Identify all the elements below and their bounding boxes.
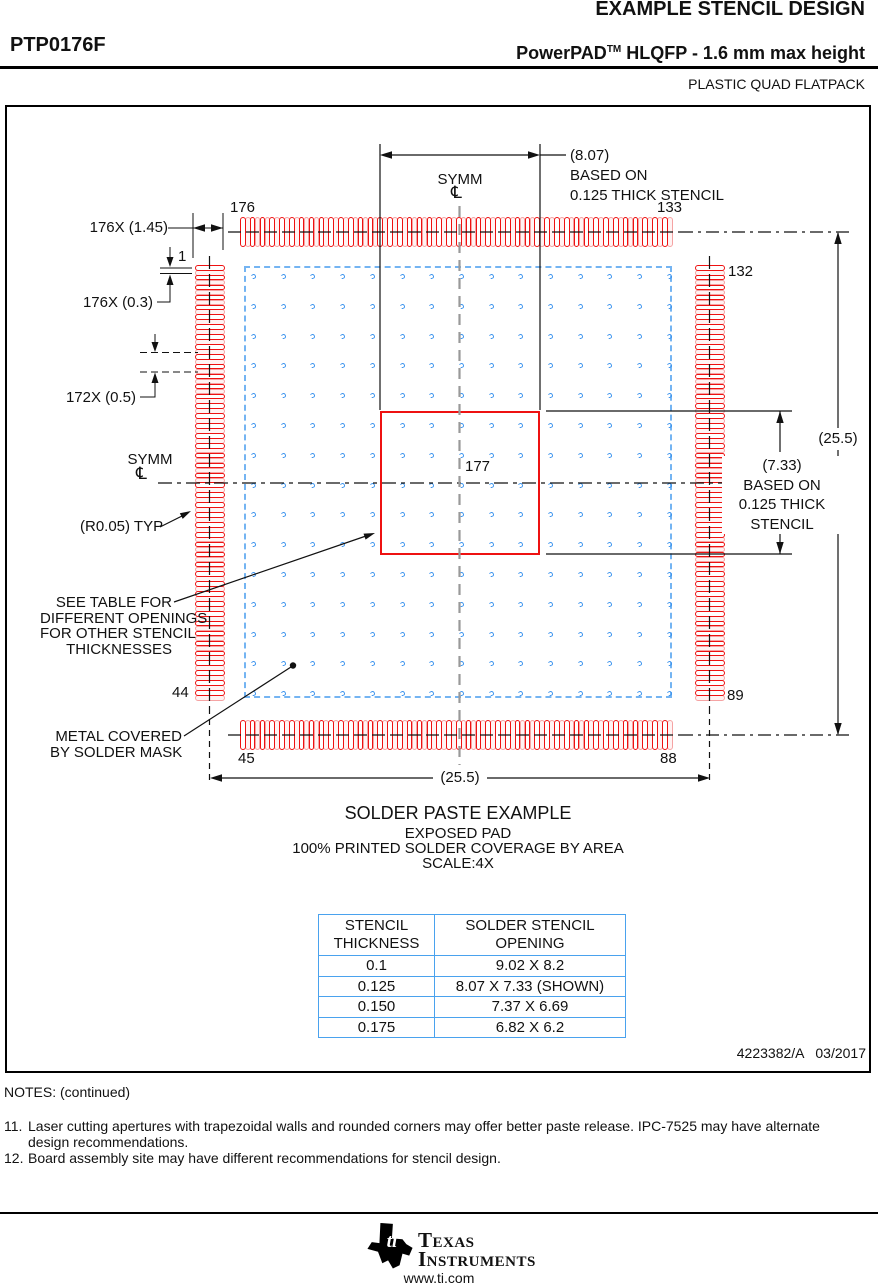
stencil-pad (476, 720, 482, 750)
stencil-pad (695, 354, 725, 360)
stencil-pad (544, 217, 550, 247)
stencil-pad (613, 720, 619, 750)
stencil-pad (195, 542, 225, 548)
caption-title: SOLDER PASTE EXAMPLE (158, 806, 758, 822)
pin-177-label: 177 (465, 459, 490, 475)
metal-covered-note: METAL COVEREDBY SOLDER MASK (50, 729, 182, 760)
centerline-symbol-top: ℄ (451, 186, 462, 202)
stencil-pad (240, 217, 246, 247)
stencil-pad (695, 275, 725, 281)
stencil-pad (574, 720, 580, 750)
stencil-pad (195, 423, 225, 429)
stencil-pad (407, 720, 413, 750)
table-row: 0.1258.07 X 7.33 (SHOWN) (319, 976, 626, 997)
stencil-pad (695, 364, 725, 370)
stencil-pad (515, 217, 521, 247)
stencil-pad (495, 217, 501, 247)
stencil-table-body: 0.19.02 X 8.20.1258.07 X 7.33 (SHOWN)0.1… (319, 956, 626, 1038)
stencil-pad (446, 217, 452, 247)
stencil-pad (505, 720, 511, 750)
document-number: 4223382/A 03/2017 (578, 1046, 866, 1062)
family-name: PowerPAD (516, 43, 607, 63)
stencil-pad (695, 695, 725, 701)
stencil-pad (642, 217, 648, 247)
stencil-pad (338, 217, 344, 247)
pin-45-label: 45 (238, 751, 255, 767)
stencil-pad (695, 601, 725, 607)
stencil-pad (667, 217, 673, 247)
stencil-pad (695, 374, 725, 380)
part-number: PTP0176F (10, 38, 106, 54)
stencil-pad (195, 403, 225, 409)
footer-rule (0, 1212, 878, 1214)
pin-89-label: 89 (727, 688, 744, 704)
stencil-pad (195, 453, 225, 459)
stencil-pad (195, 651, 225, 657)
stencil-pad (319, 217, 325, 247)
stencil-pad (195, 562, 225, 568)
pin-44-label: 44 (172, 685, 189, 701)
package-type: PLASTIC QUAD FLATPACK (688, 77, 865, 93)
symm-left-label: SYMM (125, 452, 175, 468)
stencil-pad (195, 695, 225, 701)
stencil-pad (495, 720, 501, 750)
stencil-pad (695, 423, 725, 429)
notes-heading: NOTES: (continued) (4, 1084, 130, 1100)
stencil-pad (662, 720, 668, 750)
stencil-pad (695, 651, 725, 657)
stencil-pad (348, 217, 354, 247)
stencil-pad (269, 217, 275, 247)
stencil-pad (623, 217, 629, 247)
stencil-pad (417, 720, 423, 750)
stencil-pad (417, 217, 423, 247)
stencil-pad (195, 295, 225, 301)
stencil-pad (195, 591, 225, 597)
col-header-opening: SOLDER STENCILOPENING (435, 915, 626, 956)
pin-176-label: 176 (230, 200, 255, 216)
stencil-pad (348, 720, 354, 750)
note-12-number: 12. (4, 1150, 23, 1166)
stencil-pad (554, 217, 560, 247)
stencil-pad (623, 720, 629, 750)
stencil-pad (195, 512, 225, 518)
stencil-pad (407, 217, 413, 247)
stencil-pad (195, 641, 225, 647)
stencil-pad (195, 334, 225, 340)
stencil-pad (695, 334, 725, 340)
centerline-symbol-left: ℄ (136, 467, 147, 483)
stencil-pad (603, 217, 609, 247)
stencil-pad (534, 217, 540, 247)
stencil-pad (695, 482, 725, 488)
stencil-pad (328, 217, 334, 247)
stencil-pad (269, 720, 275, 750)
ti-texas-logo: ti (366, 1222, 414, 1270)
stencil-pad (195, 601, 225, 607)
stencil-pad (695, 324, 725, 330)
stencil-pad (593, 720, 599, 750)
stencil-pad (515, 720, 521, 750)
stencil-pad (397, 217, 403, 247)
stencil-pad (695, 285, 725, 291)
stencil-pad (695, 571, 725, 577)
note-11-number: 11. (4, 1118, 22, 1134)
stencil-pad (195, 571, 225, 577)
stencil-pad (695, 443, 725, 449)
stencil-pad (695, 265, 725, 271)
dim-25-bottom-label: (25.5) (433, 770, 487, 786)
stencil-pad (240, 720, 246, 750)
radius-typ-label: (R0.05) TYP (80, 519, 163, 535)
dim-25-right-label: (25.5) (812, 431, 864, 447)
stencil-pad (195, 660, 225, 666)
dim-pad-width-label: 176X (0.3) (55, 295, 153, 311)
stencil-pad (695, 631, 725, 637)
stencil-pad (195, 384, 225, 390)
stencil-pad (377, 720, 383, 750)
stencil-pad (695, 641, 725, 647)
caption-line-4: SCALE:4X (158, 856, 758, 872)
stencil-pad (466, 217, 472, 247)
table-row: 0.1507.37 X 6.69 (319, 997, 626, 1018)
stencil-pad (554, 720, 560, 750)
dim-right-annotation: (7.33)BASED ON0.125 THICKSTENCIL (722, 456, 842, 534)
stencil-pad (319, 720, 325, 750)
stencil-pad (195, 581, 225, 587)
stencil-pad (195, 532, 225, 538)
stencil-pad (695, 621, 725, 627)
stencil-pad (436, 217, 442, 247)
stencil-pad (613, 217, 619, 247)
stencil-pad (695, 403, 725, 409)
stencil-pad (195, 324, 225, 330)
stencil-pad (289, 217, 295, 247)
stencil-pad (633, 217, 639, 247)
stencil-pad (584, 217, 590, 247)
stencil-pad (695, 492, 725, 498)
stencil-pad (195, 690, 225, 696)
ti-url: www.ti.com (0, 1271, 878, 1287)
stencil-pad (446, 720, 452, 750)
stencil-pad (195, 394, 225, 400)
stencil-pad (358, 720, 364, 750)
stencil-pad (195, 413, 225, 419)
stencil-pad (695, 394, 725, 400)
stencil-pad (195, 631, 225, 637)
stencil-pad (368, 720, 374, 750)
stencil-pad (466, 720, 472, 750)
stencil-pad (695, 591, 725, 597)
stencil-pad (564, 720, 570, 750)
stencil-pad (525, 217, 531, 247)
stencil-pad (195, 443, 225, 449)
stencil-pad (195, 680, 225, 686)
stencil-pad (593, 217, 599, 247)
stencil-pad (279, 720, 285, 750)
dim-top-annotation: (8.07)BASED ON0.125 THICK STENCIL (570, 146, 724, 206)
stencil-pad (250, 720, 256, 750)
stencil-pad (427, 217, 433, 247)
stencil-pad (195, 344, 225, 350)
stencil-pad (387, 217, 393, 247)
dim-pitch-label: 172X (0.5) (38, 390, 136, 406)
pin-1-label: 1 (178, 249, 186, 265)
stencil-pad (260, 217, 266, 247)
stencil-pad (195, 552, 225, 558)
table-row: 0.19.02 X 8.2 (319, 956, 626, 977)
stencil-pad (652, 217, 658, 247)
stencil-pad (695, 552, 725, 558)
note-11-line-1: Laser cutting apertures with trapezoidal… (28, 1118, 820, 1134)
stencil-pad (485, 217, 491, 247)
stencil-pad (289, 720, 295, 750)
stencil-pad (195, 463, 225, 469)
stencil-pad (603, 720, 609, 750)
stencil-pad (695, 413, 725, 419)
stencil-pad (195, 285, 225, 291)
dim-pad-length-label: 176X (1.45) (60, 220, 168, 236)
stencil-pad (309, 217, 315, 247)
stencil-pad (695, 344, 725, 350)
stencil-pad (195, 314, 225, 320)
stencil-pad (695, 611, 725, 617)
stencil-pad (695, 295, 725, 301)
stencil-pad (195, 522, 225, 528)
stencil-pad (695, 502, 725, 508)
trademark-sup: TM (607, 44, 621, 55)
stencil-pad (695, 305, 725, 311)
subtitle-rest: HLQFP - 1.6 mm max height (621, 43, 865, 63)
stencil-pad (299, 720, 305, 750)
stencil-pad (564, 217, 570, 247)
stencil-pad (195, 364, 225, 370)
stencil-pad (195, 670, 225, 676)
stencil-pad (525, 720, 531, 750)
stencil-pad (485, 720, 491, 750)
stencil-pad (695, 453, 725, 459)
stencil-pad (456, 217, 462, 247)
page-title: EXAMPLE STENCIL DESIGN (595, 2, 865, 18)
stencil-pad (260, 720, 266, 750)
stencil-pad (695, 532, 725, 538)
stencil-pad (195, 265, 225, 271)
stencil-pad (195, 275, 225, 281)
stencil-pad (695, 660, 725, 666)
stencil-pad (695, 314, 725, 320)
stencil-pad (195, 502, 225, 508)
stencil-pad (195, 433, 225, 439)
stencil-pad (695, 670, 725, 676)
stencil-pad (456, 720, 462, 750)
stencil-pad (195, 482, 225, 488)
stencil-pad (695, 463, 725, 469)
stencil-pad (436, 720, 442, 750)
pin-88-label: 88 (660, 751, 677, 767)
note-12-line-1: Board assembly site may have different r… (28, 1150, 501, 1166)
exposed-pad-opening (380, 411, 540, 555)
stencil-pad (427, 720, 433, 750)
stencil-pad (368, 217, 374, 247)
stencil-pad (695, 433, 725, 439)
table-row: 0.1756.82 X 6.2 (319, 1017, 626, 1038)
stencil-pad (476, 217, 482, 247)
col-header-thickness: STENCILTHICKNESS (319, 915, 435, 956)
stencil-pad (195, 354, 225, 360)
stencil-pad (544, 720, 550, 750)
stencil-pad (387, 720, 393, 750)
stencil-pad (633, 720, 639, 750)
stencil-pad (534, 720, 540, 750)
stencil-pad (195, 473, 225, 479)
stencil-pad (695, 581, 725, 587)
pin-132-label: 132 (728, 264, 753, 280)
stencil-pad (358, 217, 364, 247)
stencil-pad (338, 720, 344, 750)
stencil-pad (695, 542, 725, 548)
datasheet-page: EXAMPLE STENCIL DESIGN PTP0176F PowerPAD… (0, 0, 878, 1288)
brand-instruments: Instruments (418, 1250, 536, 1269)
stencil-pad (195, 305, 225, 311)
stencil-pad (642, 720, 648, 750)
stencil-pad (195, 374, 225, 380)
stencil-pad (695, 384, 725, 390)
stencil-pad (328, 720, 334, 750)
stencil-pad (652, 720, 658, 750)
header-rule (0, 66, 878, 69)
stencil-pad (695, 522, 725, 528)
stencil-pad (299, 217, 305, 247)
see-table-note: SEE TABLE FORDIFFERENT OPENINGSFOR OTHER… (40, 595, 172, 657)
stencil-pad (695, 562, 725, 568)
note-11-line-2: design recommendations. (28, 1134, 188, 1150)
stencil-pad (309, 720, 315, 750)
stencil-pad (505, 217, 511, 247)
stencil-pad (695, 690, 725, 696)
ti-logo-letters: ti (387, 1231, 398, 1252)
stencil-pad (279, 217, 285, 247)
stencil-opening-table: STENCILTHICKNESS SOLDER STENCILOPENING 0… (318, 914, 626, 1038)
stencil-pad (662, 217, 668, 247)
stencil-pad (667, 720, 673, 750)
stencil-pad (397, 720, 403, 750)
stencil-pad (695, 512, 725, 518)
package-subtitle: PowerPADTM HLQFP - 1.6 mm max height (516, 42, 865, 62)
stencil-pad (574, 217, 580, 247)
stencil-pad (695, 680, 725, 686)
stencil-pad (250, 217, 256, 247)
stencil-pad (695, 473, 725, 479)
stencil-pad (377, 217, 383, 247)
stencil-pad (195, 492, 225, 498)
stencil-pad (584, 720, 590, 750)
